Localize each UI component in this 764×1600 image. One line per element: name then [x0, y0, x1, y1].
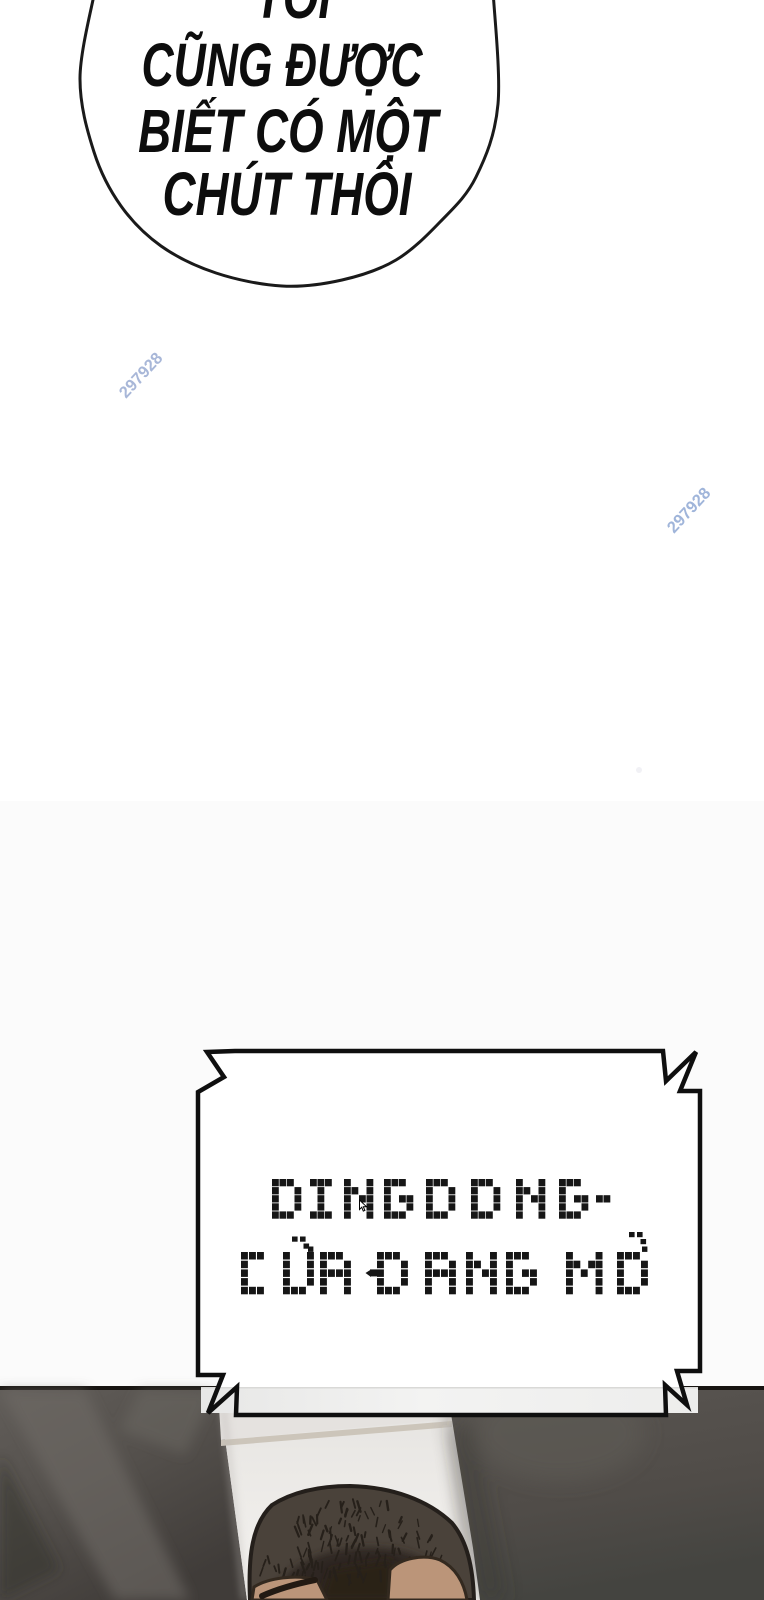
svg-text:CHÚT THÔI: CHÚT THÔI [162, 160, 412, 229]
svg-text:TÔI: TÔI [255, 0, 332, 32]
svg-text:CŨNG ĐƯỢC: CŨNG ĐƯỢC [141, 31, 423, 100]
svg-text:BIẾT CÓ MỘT: BIẾT CÓ MỘT [138, 97, 441, 166]
